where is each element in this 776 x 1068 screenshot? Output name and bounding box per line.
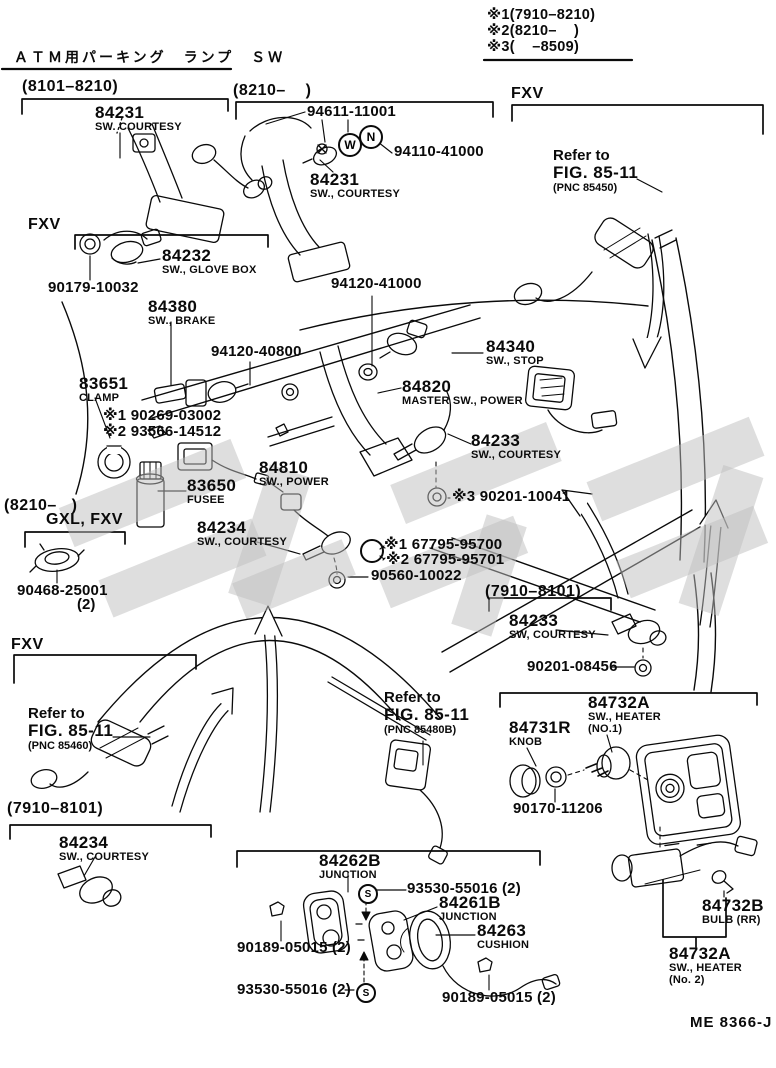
part-label-83651: 83651 CLAMP — [79, 375, 128, 405]
part-label-84231-8210: 84231 SW., COURTESY — [310, 171, 400, 201]
part-label-84234-gxl: 84234 SW., COURTESY — [197, 519, 287, 549]
figure-code: ME 8366-J — [690, 1015, 772, 1031]
ref-fig-85-11-left: Refer to FIG. 85-11 (PNC 85460) — [28, 706, 113, 752]
fastener-90468-qty: (2) — [17, 597, 95, 613]
part-label-84810: 84810 SW., POWER — [259, 459, 329, 489]
part-label-84232: 84232 SW., GLOVE BOX — [162, 247, 256, 277]
fastener-94110-41000: 94110-41000 — [394, 144, 484, 160]
fastener-94120-40800: 94120-40800 — [211, 344, 302, 360]
section-fxv-mid: FXV — [28, 216, 61, 233]
heater-switch2-drawing — [612, 827, 758, 893]
part-label-84263: 84263 CUSHION — [477, 922, 529, 952]
clock-spring-drawing — [30, 544, 84, 583]
heater-panel-drawing — [635, 734, 743, 852]
section-8210: (8210– ) — [233, 82, 311, 99]
note-asterisk-2: ※2(8210– ) — [487, 24, 579, 40]
ref-fig-85-11-mid: Refer to FIG. 85-11 (PNC 85480B) — [384, 690, 469, 736]
screw-symbol-bottom: S — [356, 983, 376, 1003]
s-symbol-arrows — [360, 901, 370, 982]
part-label-84340: 84340 SW., STOP — [486, 338, 544, 368]
courtesy-switch-bl-drawing — [58, 866, 124, 909]
fastener-93530-55016-bottom: 93530-55016 (2) — [237, 982, 351, 998]
page-title: ＡＴＭ用パーキング ランプ ＳＷ — [14, 50, 285, 65]
master-switch-drawing — [525, 366, 617, 433]
section-gxl-fxv: GXL, FXV — [46, 511, 123, 528]
note-asterisk-1: ※1(7910–8210) — [487, 8, 595, 24]
section-8101-8210: (8101–8210) — [22, 78, 118, 95]
fastener-93530-55016-top: 93530-55016 (2) — [407, 881, 521, 897]
section-fxv-top: FXV — [511, 85, 544, 102]
pedal-drawing-8101 — [117, 118, 274, 243]
fastener-90189-05015-right: 90189-05015 (2) — [442, 990, 556, 1006]
fastener-90189-05015-left: 90189-05015 (2) — [237, 940, 351, 956]
oring-drawing — [361, 540, 384, 562]
section-fxv-bottom: FXV — [11, 636, 44, 653]
fastener-90269-03002: ※1 90269-03002 — [103, 408, 221, 424]
diagram-line-art — [0, 0, 776, 1068]
part-label-84233-7910: 84233 SW, COURTESY — [509, 612, 596, 642]
glovebox-switch-drawing — [80, 229, 162, 266]
part-label-84732A-no1: 84732A SW., HEATER (NO.1) — [588, 694, 661, 736]
note-asterisk-3: ※3( –8509) — [487, 40, 579, 56]
part-label-84820: 84820 MASTER SW., POWER — [402, 378, 523, 408]
section-7910-8101-right: (7910–8101) — [485, 583, 581, 600]
nut-symbol: N — [359, 125, 383, 149]
middle-pedal-drawing — [268, 346, 412, 476]
part-label-83650: 83650 FUSEE — [187, 477, 236, 507]
part-label-84732A-no2: 84732A SW., HEATER (No. 2) — [669, 945, 742, 987]
part-label-84234-7910: 84234 SW., COURTESY — [59, 834, 149, 864]
parts-diagram-page: ＡＴＭ用パーキング ランプ ＳＷ ※1(7910–8210) ※2(8210– … — [0, 0, 776, 1068]
fastener-93566-14512: ※2 93566-14512 — [103, 424, 221, 440]
part-label-84732B: 84732B BULB (RR) — [702, 897, 764, 927]
fastener-67795-95701: ※2 67795-95701 — [386, 552, 504, 568]
fastener-90201-10041: ※3 90201-10041 — [452, 489, 570, 505]
fastener-94120-41000: 94120-41000 — [331, 276, 422, 292]
section-7910-8101-left: (7910–8101) — [7, 800, 103, 817]
fastener-90201-08456: 90201-08456 — [527, 659, 618, 675]
fastener-90170-11206: 90170-11206 — [513, 801, 603, 817]
part-label-84231-8101: 84231 SW. COURTESY — [95, 104, 182, 134]
part-label-84261B: 84261B JUNCTION — [439, 894, 501, 924]
fastener-94611-11001: 94611-11001 — [307, 104, 396, 120]
ref-fig-85-11-top: Refer to FIG. 85-11 (PNC 85450) — [553, 148, 638, 194]
part-label-84731R: 84731R KNOB — [509, 719, 571, 749]
part-label-84262B: 84262B JUNCTION — [319, 852, 381, 882]
fastener-90560-10022: 90560-10022 — [371, 568, 462, 584]
screw-symbol-top: S — [358, 884, 378, 904]
part-label-84233-mid: 84233 SW., COURTESY — [471, 432, 561, 462]
part-label-84380: 84380 SW., BRAKE — [148, 298, 215, 328]
fastener-90179-10032: 90179-10032 — [48, 280, 139, 296]
